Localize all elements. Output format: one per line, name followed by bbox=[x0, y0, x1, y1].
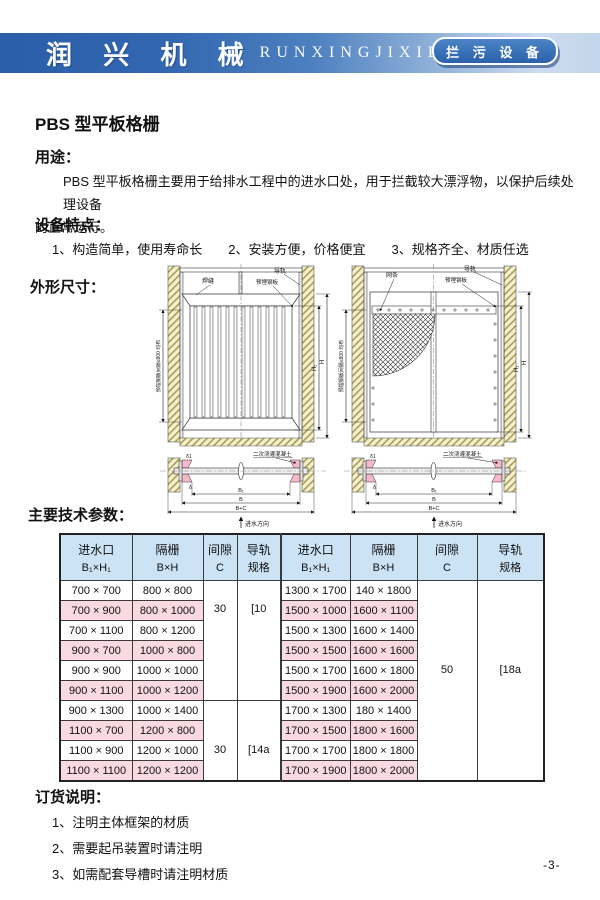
order-item: 3、如需配套导槽时请注明材质 bbox=[52, 862, 228, 888]
feature-item: 2、安装方便，价格便宜 bbox=[228, 239, 365, 258]
dim-b1-label: B₁ bbox=[431, 488, 437, 494]
feature-item: 1、构造简单，使用寿命长 bbox=[52, 239, 202, 258]
cell-inlet-size: 1300 × 1700 bbox=[281, 581, 350, 601]
dim-h-label: H bbox=[320, 360, 326, 364]
cell-screen-size: 1000 × 1000 bbox=[132, 661, 203, 681]
delta1-label: δ1 bbox=[186, 454, 192, 460]
cell-screen-size: 1000 × 1200 bbox=[132, 681, 203, 701]
cell-rail-spec: [14a bbox=[237, 701, 281, 782]
rail-label: 导轨 bbox=[464, 265, 476, 273]
col-header-inlet: 进水口B₁×H₁ bbox=[60, 534, 132, 581]
leader-line bbox=[196, 285, 210, 295]
cell-screen-size: 800 × 800 bbox=[132, 581, 203, 601]
cell-inlet-size: 1100 × 1100 bbox=[60, 761, 132, 782]
spacing-label: 预埋钢板间隔≤800 均布 bbox=[156, 340, 162, 392]
flow-direction-label: 进水方向 bbox=[438, 520, 462, 528]
category-badge: 拦 污 设 备 bbox=[432, 37, 558, 65]
cell-screen-size: 800 × 1200 bbox=[132, 621, 203, 641]
guide-rail-left bbox=[180, 272, 183, 438]
cell-rail-spec: [18a bbox=[477, 581, 544, 782]
leader-line bbox=[284, 274, 300, 285]
col-header-gap: 间隙C bbox=[203, 534, 237, 581]
lifting-stub bbox=[239, 272, 242, 294]
cell-gap: 50 bbox=[417, 581, 477, 782]
mesh-bar-label: 网条 bbox=[386, 271, 398, 279]
cell-screen-size: 1800 × 1600 bbox=[350, 721, 417, 741]
catalog-page: 润 兴 机 械 RUNXINGJIXIE 拦 污 设 备 PBS 型平板格栅 用… bbox=[0, 0, 600, 900]
wall-left bbox=[352, 266, 364, 442]
col-header-rail: 导轨规格 bbox=[237, 534, 281, 581]
outline-drawing-bar-screen: 焊缝 导轨 预埋钢板 预埋钢板间隔≤800 均布 H₁ H bbox=[156, 262, 331, 530]
header-bar: 润 兴 机 械 RUNXINGJIXIE 拦 污 设 备 bbox=[0, 33, 600, 73]
dim-bc-label: B+C bbox=[429, 506, 440, 512]
dim-h-label: H bbox=[522, 361, 528, 365]
cell-inlet-size: 1500 × 1700 bbox=[281, 661, 350, 681]
cell-inlet-size: 900 × 900 bbox=[60, 661, 132, 681]
outline-drawing-mesh-screen: 网条 导轨 预埋钢板 预埋钢板间隔≤800 均布 H₁ H bbox=[338, 262, 533, 530]
weld-label: 焊缝 bbox=[202, 277, 214, 285]
delta1-label: δ1 bbox=[370, 454, 376, 460]
usage-line-2: 的正常运行。 bbox=[35, 216, 575, 239]
cell-screen-size: 1200 × 1000 bbox=[132, 741, 203, 761]
cell-inlet-size: 900 × 1300 bbox=[60, 701, 132, 721]
table-header-row: 进水口B₁×H₁ 隔栅B×H 间隙C 导轨规格 进水口B₁×H₁ 隔栅B×H 间… bbox=[60, 534, 544, 581]
cell-inlet-size: 1500 × 1500 bbox=[281, 641, 350, 661]
cell-rail-spec: [10 bbox=[237, 581, 281, 701]
embedded-plate-label: 预埋钢板 bbox=[445, 276, 468, 284]
order-item: 1、注明主体框架的材质 bbox=[52, 810, 228, 836]
order-heading: 订货说明： bbox=[35, 786, 110, 807]
ground-band bbox=[180, 438, 302, 446]
concrete-label: 二次浇灌混凝土 bbox=[443, 450, 482, 458]
dim-bc-label: B+C bbox=[236, 506, 247, 512]
cell-inlet-size: 1700 × 1300 bbox=[281, 701, 350, 721]
wall-left bbox=[168, 266, 180, 442]
col-header-gap: 间隙C bbox=[417, 534, 477, 581]
cell-screen-size: 1200 × 800 bbox=[132, 721, 203, 741]
flow-direction-label: 进水方向 bbox=[245, 520, 269, 528]
cell-screen-size: 1600 × 1400 bbox=[350, 621, 417, 641]
delta-label: δ bbox=[189, 485, 192, 491]
cell-inlet-size: 900 × 1100 bbox=[60, 681, 132, 701]
section-view: 二次浇灌混凝土 δ1 δ B₁ B B+C 进水方向 bbox=[160, 450, 326, 528]
order-item: 2、需要起吊装置时请注明 bbox=[52, 836, 228, 862]
top-rail bbox=[364, 268, 504, 272]
cell-screen-size: 1600 × 1600 bbox=[350, 641, 417, 661]
cell-screen-size: 1000 × 800 bbox=[132, 641, 203, 661]
cell-screen-size: 180 × 1400 bbox=[350, 701, 417, 721]
spacing-label: 预埋钢板间隔≤800 均布 bbox=[338, 340, 345, 392]
cell-inlet-size: 1700 × 1900 bbox=[281, 761, 350, 782]
feature-item: 3、规格齐全、材质任选 bbox=[391, 239, 528, 258]
dim-h1-label: H₁ bbox=[312, 365, 318, 371]
cell-inlet-size: 1500 × 1900 bbox=[281, 681, 350, 701]
table-row: 700 × 700 800 × 800 30 [10 1300 × 1700 1… bbox=[60, 581, 544, 601]
wall-right bbox=[504, 266, 516, 442]
leader-line bbox=[474, 272, 502, 285]
cell-inlet-size: 1100 × 900 bbox=[60, 741, 132, 761]
page-title: PBS 型平板格栅 bbox=[35, 110, 160, 135]
ground-band bbox=[364, 438, 504, 446]
col-header-rail: 导轨规格 bbox=[477, 534, 544, 581]
cell-inlet-size: 1500 × 1000 bbox=[281, 601, 350, 621]
embedded-plate-label: 预埋钢板 bbox=[256, 278, 279, 286]
cell-inlet-size: 1700 × 1700 bbox=[281, 741, 350, 761]
usage-paragraph: PBS 型平板格栅主要用于给排水工程中的进水口处，用于拦截较大漂浮物，以保护后续… bbox=[35, 170, 575, 239]
cell-inlet-size: 700 × 900 bbox=[60, 601, 132, 621]
usage-line-1: PBS 型平板格栅主要用于给排水工程中的进水口处，用于拦截较大漂浮物，以保护后续… bbox=[35, 170, 575, 216]
cell-gap: 30 bbox=[203, 701, 237, 782]
delta-label: δ bbox=[373, 485, 376, 491]
concrete-label: 二次浇灌混凝土 bbox=[253, 450, 292, 458]
usage-heading: 用途： bbox=[35, 146, 80, 167]
cell-inlet-size: 900 × 700 bbox=[60, 641, 132, 661]
order-notes: 1、注明主体框架的材质 2、需要起吊装置时请注明 3、如需配套导槽时请注明材质 bbox=[52, 810, 228, 888]
params-heading: 主要技术参数： bbox=[28, 504, 133, 525]
col-header-screen: 隔栅B×H bbox=[350, 534, 417, 581]
cell-inlet-size: 700 × 700 bbox=[60, 581, 132, 601]
cell-screen-size: 1600 × 1800 bbox=[350, 661, 417, 681]
brand-name-cn: 润 兴 机 械 bbox=[46, 35, 256, 72]
cell-inlet-size: 700 × 1100 bbox=[60, 621, 132, 641]
guide-rail-right bbox=[299, 272, 302, 438]
col-header-inlet: 进水口B₁×H₁ bbox=[281, 534, 350, 581]
page-number: -3- bbox=[543, 858, 561, 872]
rail-label: 导轨 bbox=[274, 267, 286, 275]
features-list: 1、构造简单，使用寿命长 2、安装方便，价格便宜 3、规格齐全、材质任选 bbox=[52, 239, 529, 258]
cell-screen-size: 800 × 1000 bbox=[132, 601, 203, 621]
cell-screen-size: 1800 × 1800 bbox=[350, 741, 417, 761]
cell-screen-size: 1200 × 1200 bbox=[132, 761, 203, 782]
cell-screen-size: 140 × 1800 bbox=[350, 581, 417, 601]
dim-b-label: B bbox=[239, 497, 243, 503]
features-heading: 设备特点： bbox=[35, 214, 110, 235]
dim-b1-label: B₁ bbox=[238, 488, 244, 494]
cell-screen-size: 1600 × 2000 bbox=[350, 681, 417, 701]
cell-screen-size: 1000 × 1400 bbox=[132, 701, 203, 721]
dim-b-label: B bbox=[432, 497, 436, 503]
section-view: 二次浇灌混凝土 δ1 δ B₁ B B+C 进水方向 bbox=[344, 450, 528, 528]
technical-parameters-table: 进水口B₁×H₁ 隔栅B×H 间隙C 导轨规格 进水口B₁×H₁ 隔栅B×H 间… bbox=[59, 533, 545, 782]
cell-inlet-size: 1100 × 700 bbox=[60, 721, 132, 741]
cell-screen-size: 1800 × 2000 bbox=[350, 761, 417, 782]
cell-screen-size: 1600 × 1100 bbox=[350, 601, 417, 621]
guide-rail-left bbox=[364, 272, 367, 438]
guide-rail-right bbox=[501, 272, 504, 438]
cell-inlet-size: 1500 × 1300 bbox=[281, 621, 350, 641]
dim-h1-label: H₁ bbox=[514, 366, 520, 372]
col-header-screen: 隔栅B×H bbox=[132, 534, 203, 581]
brand-name-en: RUNXINGJIXIE bbox=[260, 44, 444, 62]
cell-inlet-size: 1700 × 1500 bbox=[281, 721, 350, 741]
wall-right bbox=[302, 266, 314, 442]
cell-gap: 30 bbox=[203, 581, 237, 701]
dimensions-heading: 外形尺寸： bbox=[30, 276, 105, 297]
